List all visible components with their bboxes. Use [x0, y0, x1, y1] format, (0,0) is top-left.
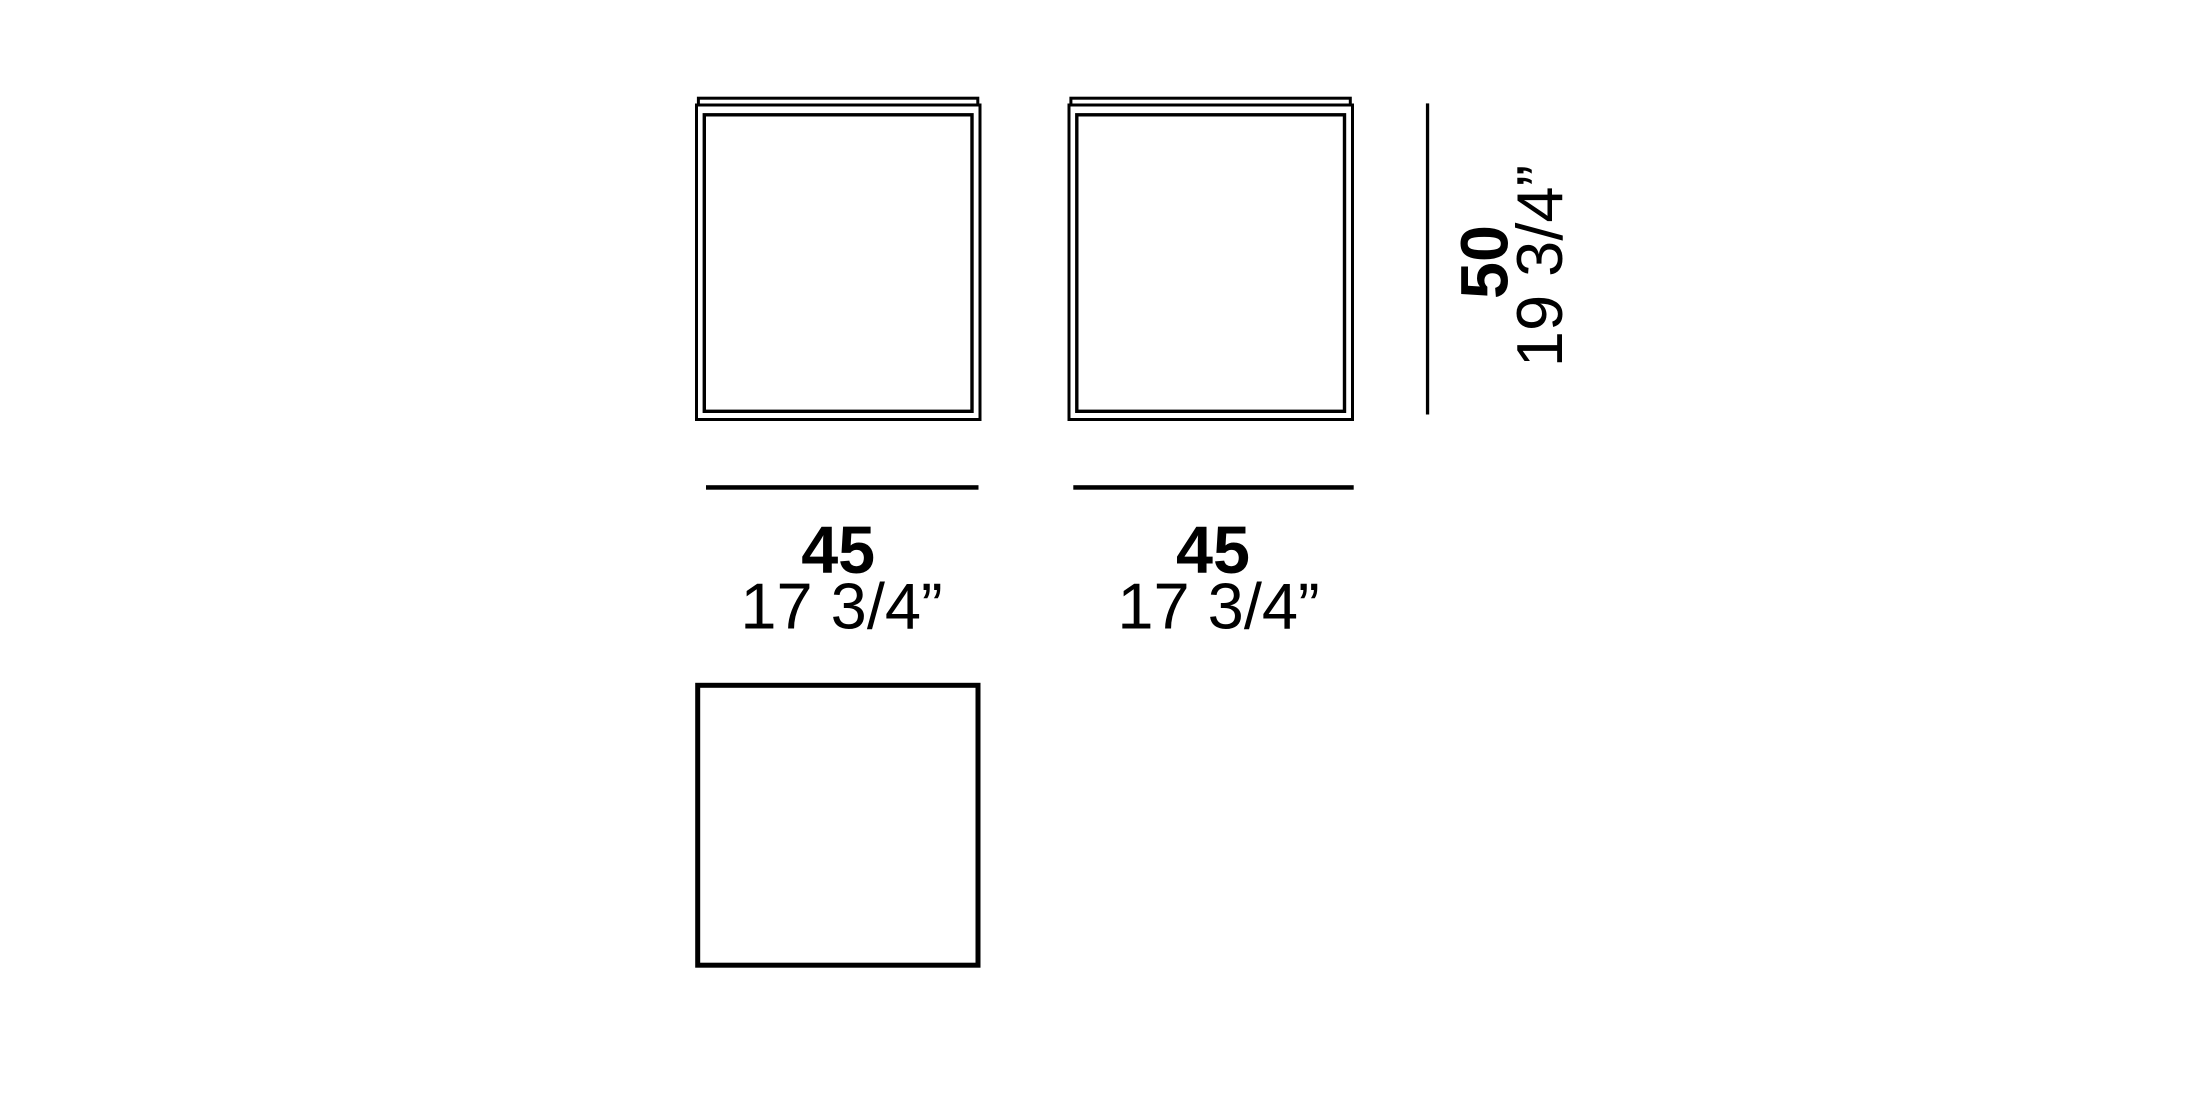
svg-text:19 3/4”: 19 3/4” [1503, 165, 1576, 367]
svg-text:17 3/4”: 17 3/4” [740, 570, 942, 643]
svg-text:17 3/4”: 17 3/4” [1117, 570, 1319, 643]
